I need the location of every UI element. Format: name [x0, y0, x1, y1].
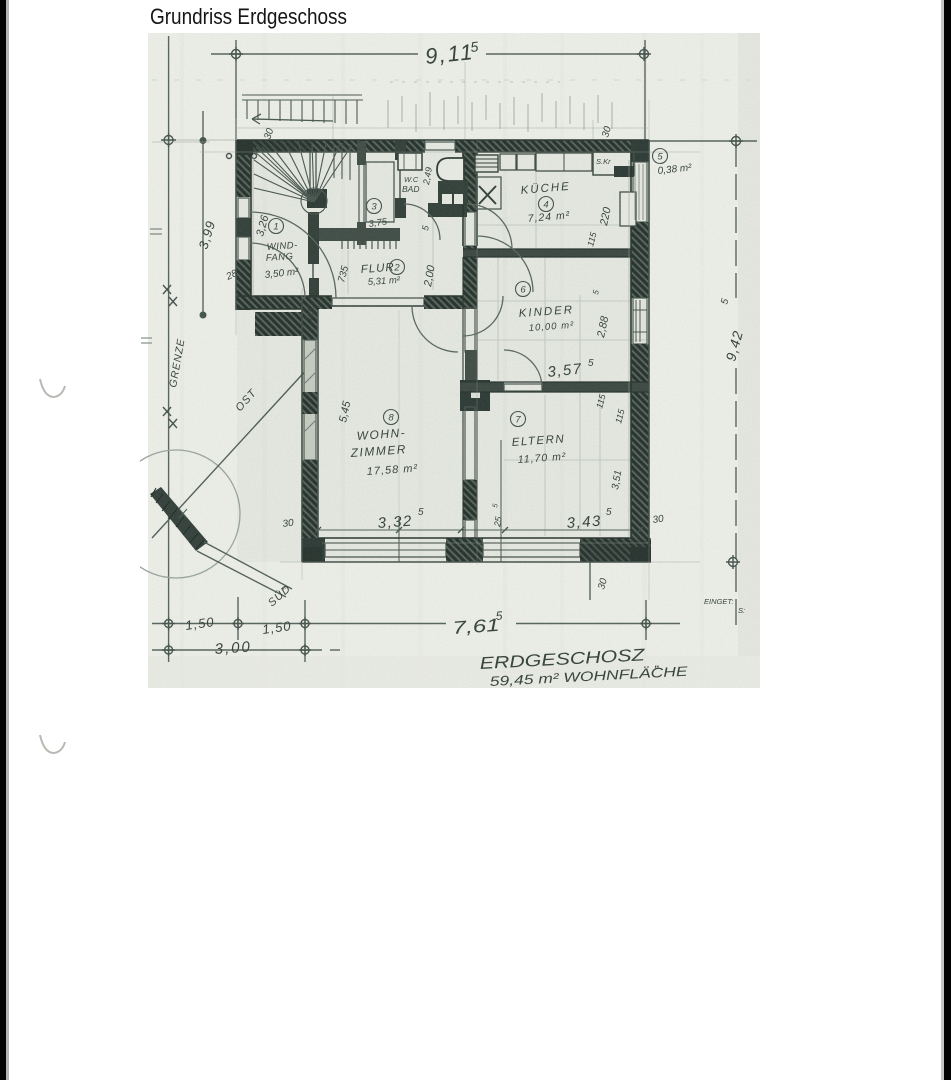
svg-text:BAD: BAD: [402, 184, 419, 194]
svg-text:3,32: 3,32: [377, 513, 413, 532]
svg-text:3,00: 3,00: [214, 638, 252, 658]
svg-text:5,31 m²: 5,31 m²: [367, 275, 401, 288]
svg-text:2: 2: [393, 263, 400, 274]
svg-text:8: 8: [388, 413, 394, 424]
svg-text:5: 5: [588, 358, 594, 369]
svg-text:5: 5: [495, 609, 503, 623]
svg-text:S.Kr: S.Kr: [596, 157, 611, 166]
svg-text:7,61: 7,61: [452, 615, 500, 638]
svg-text:3: 3: [371, 202, 377, 213]
svg-text:3,43: 3,43: [566, 513, 602, 532]
svg-text:W.C: W.C: [404, 175, 419, 184]
svg-text:EINGET:: EINGET:: [704, 597, 733, 606]
svg-text:FANG: FANG: [265, 251, 293, 264]
svg-text:7: 7: [515, 415, 521, 426]
svg-text:5: 5: [418, 507, 424, 518]
svg-text:S:: S:: [738, 606, 745, 615]
svg-text:9,11: 9,11: [424, 39, 476, 69]
svg-text:30: 30: [652, 513, 665, 526]
svg-text:6: 6: [520, 285, 526, 296]
svg-text:Grundriss Erdgeschoss: Grundriss Erdgeschoss: [150, 4, 347, 29]
svg-text:5: 5: [606, 507, 612, 518]
svg-text:4: 4: [543, 200, 548, 211]
svg-text:30: 30: [282, 517, 295, 530]
svg-text:1: 1: [273, 222, 278, 233]
svg-text:5: 5: [657, 152, 663, 163]
